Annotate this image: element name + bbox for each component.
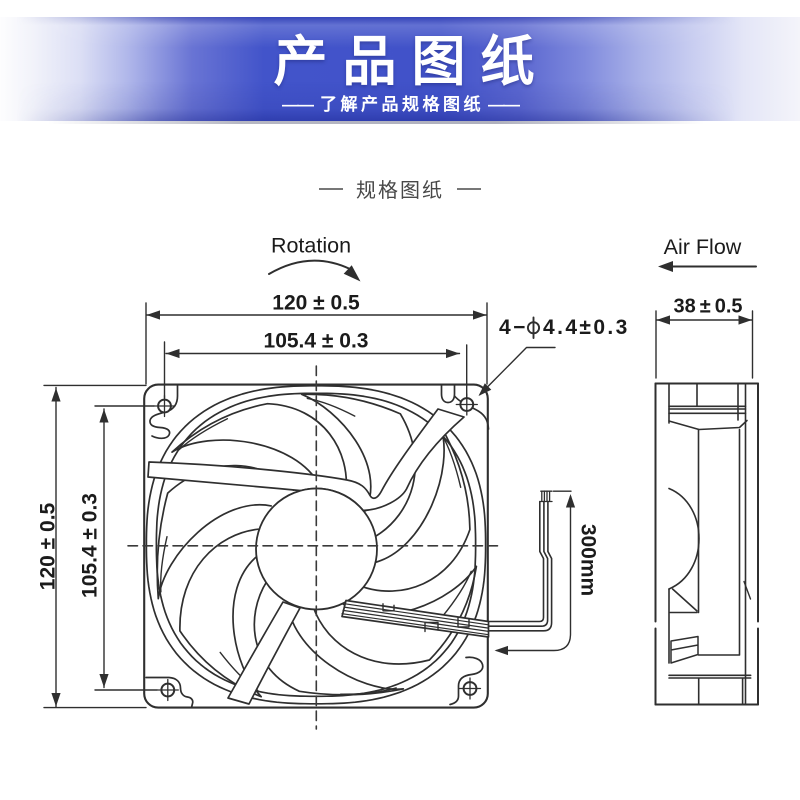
svg-text:Rotation: Rotation [271, 234, 351, 258]
svg-text:38 ± 0.5: 38 ± 0.5 [673, 296, 742, 318]
svg-text:105.4 ± 0.3: 105.4 ± 0.3 [264, 330, 369, 353]
svg-text:120 ± 0.5: 120 ± 0.5 [272, 292, 360, 315]
svg-text:4.4±0.3: 4.4±0.3 [543, 316, 630, 339]
svg-text:300mm: 300mm [577, 524, 600, 596]
svg-text:4−: 4− [499, 316, 528, 339]
svg-text:Air Flow: Air Flow [664, 235, 742, 259]
svg-text:105.4 ± 0.3: 105.4 ± 0.3 [79, 493, 102, 598]
